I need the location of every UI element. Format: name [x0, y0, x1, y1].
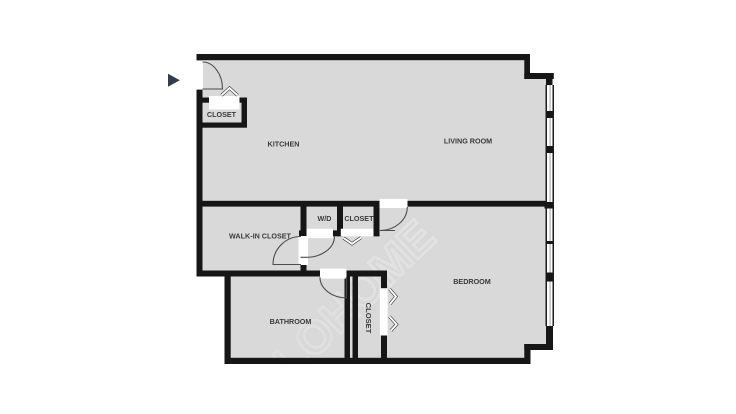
svg-text:KITCHEN: KITCHEN: [268, 139, 300, 148]
svg-text:LIVING ROOM: LIVING ROOM: [444, 137, 492, 146]
svg-text:CLOSET: CLOSET: [364, 303, 373, 334]
svg-text:BATHROOM: BATHROOM: [270, 317, 312, 326]
svg-text:W/D: W/D: [318, 214, 332, 223]
svg-text:BEDROOM: BEDROOM: [453, 277, 491, 286]
svg-text:WALK-IN CLOSET: WALK-IN CLOSET: [229, 232, 291, 241]
svg-text:CLOSET: CLOSET: [344, 214, 374, 223]
svg-text:CLOSET: CLOSET: [207, 110, 237, 119]
